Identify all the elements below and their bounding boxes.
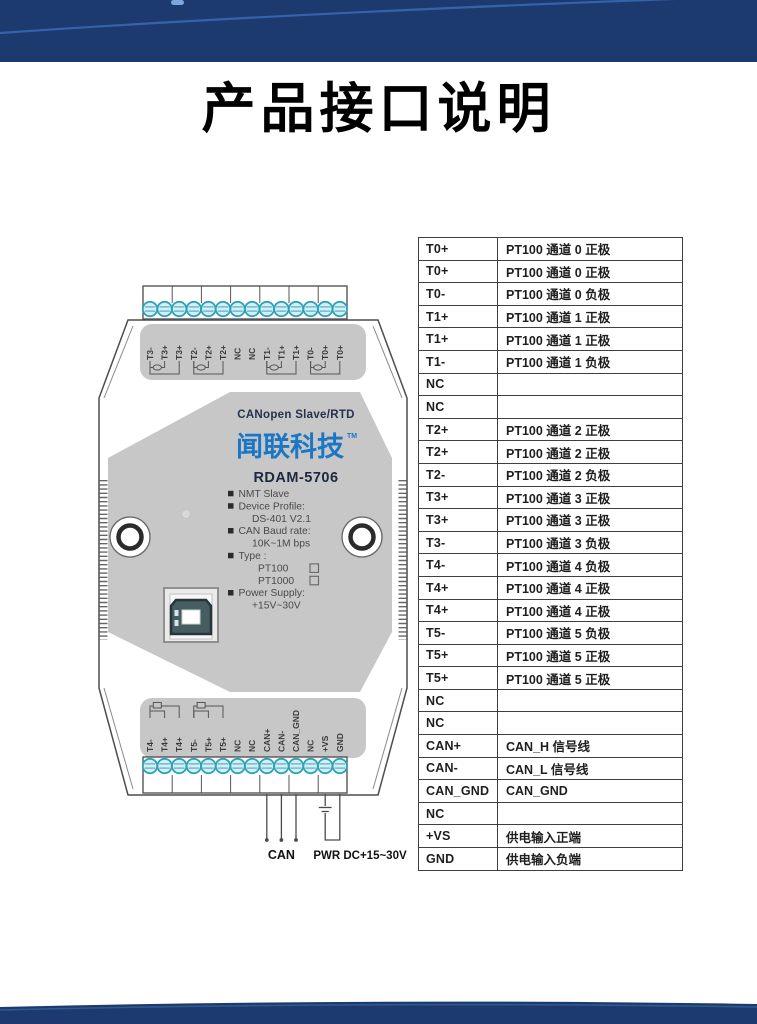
- desc-cell: PT100 通道 1 正极: [498, 306, 682, 328]
- terminal-screw: [260, 302, 274, 316]
- pin-cell: T4-: [419, 554, 498, 576]
- terminal-screw: [289, 759, 303, 773]
- model-number: RDAM-5706: [253, 470, 338, 486]
- pin-cell: NC: [419, 712, 498, 734]
- terminal-label: T3+: [160, 345, 170, 360]
- desc-cell: PT100 通道 2 正极: [498, 419, 682, 441]
- trademark-mark: TM: [347, 433, 357, 440]
- table-row: T4-PT100 通道 4 负极: [419, 554, 682, 577]
- table-row: T4+PT100 通道 4 正极: [419, 600, 682, 623]
- spec-line: +15V~30V: [252, 601, 301, 612]
- terminal-screw: [187, 759, 201, 773]
- table-row: T2+PT100 通道 2 正极: [419, 419, 682, 442]
- spec-line: Device Profile:: [239, 501, 305, 512]
- terminal-label: T4+: [174, 737, 184, 752]
- bullet-square-icon: [228, 528, 234, 534]
- terminal-label: T2+: [203, 345, 213, 360]
- table-row: T2-PT100 通道 2 负极: [419, 464, 682, 487]
- pin-cell: GND: [419, 848, 498, 870]
- header-background: [0, 0, 757, 62]
- desc-cell: 供电输入负端: [498, 848, 682, 870]
- terminal-label: T5+: [218, 737, 228, 752]
- terminal-label: NC: [247, 348, 257, 360]
- table-row: T3+PT100 通道 3 正极: [419, 487, 682, 510]
- table-row: CAN_GNDCAN_GND: [419, 780, 682, 803]
- terminal-label: T0+: [320, 345, 330, 360]
- terminal-screw: [143, 302, 157, 316]
- pin-cell: T2-: [419, 464, 498, 486]
- spec-line: PT1000: [258, 576, 294, 587]
- terminal-label: T2+: [218, 345, 228, 360]
- pin-cell: T0+: [419, 261, 498, 283]
- bottom-terminal-block: [143, 757, 347, 793]
- terminal-screw: [318, 302, 332, 316]
- desc-cell: [498, 690, 682, 712]
- desc-cell: PT100 通道 3 正极: [498, 509, 682, 531]
- table-row: T5+PT100 通道 5 正极: [419, 645, 682, 668]
- pin-cell: +VS: [419, 825, 498, 847]
- terminal-label: NC: [233, 740, 243, 752]
- pin-cell: NC: [419, 396, 498, 418]
- pin-cell: T4+: [419, 577, 498, 599]
- top-terminals: T3-T3+T3+T2-T2+T2+NCNCT1-T1+T1+T0-T0+T0+: [143, 302, 347, 360]
- terminal-screw: [274, 759, 288, 773]
- table-row: NC: [419, 690, 682, 713]
- terminal-screw: [245, 302, 259, 316]
- terminal-label: GND: [335, 733, 345, 752]
- table-row: T2+PT100 通道 2 正极: [419, 441, 682, 464]
- desc-cell: PT100 通道 0 正极: [498, 261, 682, 283]
- terminal-label: T4+: [160, 737, 170, 752]
- pin-cell: NC: [419, 803, 498, 825]
- pin-cell: T0+: [419, 238, 498, 260]
- desc-cell: PT100 通道 4 正极: [498, 600, 682, 622]
- brand-logo-text: 闻联科技: [236, 432, 344, 462]
- desc-cell: [498, 712, 682, 734]
- table-row: T5+PT100 通道 5 正极: [419, 667, 682, 690]
- desc-cell: PT100 通道 4 负极: [498, 554, 682, 576]
- status-led: [182, 510, 191, 519]
- pin-cell: T5-: [419, 622, 498, 644]
- terminal-label: T3-: [145, 347, 155, 360]
- device-body-detail-lines: [104, 326, 402, 789]
- terminal-screw: [230, 759, 244, 773]
- power-wire-label: PWR DC+15~30V: [313, 850, 407, 862]
- center-label-panel: [108, 392, 392, 692]
- terminal-label: T2-: [189, 347, 199, 360]
- table-row: T3+PT100 通道 3 正极: [419, 509, 682, 532]
- terminal-label: T1+: [276, 345, 286, 360]
- bottom-jumper-links: [150, 703, 223, 719]
- terminal-label: +VS: [320, 735, 330, 752]
- terminal-screw: [216, 302, 230, 316]
- table-row: NC: [419, 803, 682, 826]
- desc-cell: PT100 通道 5 正极: [498, 645, 682, 667]
- table-row: T1-PT100 通道 1 负极: [419, 351, 682, 374]
- desc-cell: PT100 通道 2 负极: [498, 464, 682, 486]
- pin-cell: T3+: [419, 509, 498, 531]
- table-row: NC: [419, 712, 682, 735]
- terminal-label: T1-: [262, 347, 272, 360]
- desc-cell: [498, 396, 682, 418]
- pin-cell: CAN-: [419, 758, 498, 780]
- terminal-label: T5-: [189, 739, 199, 752]
- top-terminal-block: [143, 286, 347, 319]
- pin-cell: NC: [419, 374, 498, 396]
- device-body: [99, 320, 407, 795]
- table-row: NC: [419, 374, 682, 397]
- desc-cell: [498, 374, 682, 396]
- type-checkbox: [310, 576, 319, 585]
- spec-line: PT100: [258, 563, 289, 574]
- terminal-screw: [274, 302, 288, 316]
- terminal-label: T1+: [291, 345, 301, 360]
- terminal-label: CAN_GND: [291, 710, 301, 752]
- pin-cell: T5+: [419, 645, 498, 667]
- table-row: T0-PT100 通道 0 负极: [419, 283, 682, 306]
- terminal-screw: [289, 302, 303, 316]
- pin-cell: T3-: [419, 532, 498, 554]
- bottom-terminals: T4-T4+T4+T5-T5+T5+NCNCCAN+CAN-CAN_GNDNC+…: [143, 710, 347, 773]
- page-title: 产品接口说明: [0, 64, 757, 143]
- spec-list: NMT SlaveDevice Profile:DS-401 V2.1CAN B…: [228, 489, 319, 612]
- bottom-terminal-label-strip: [140, 698, 366, 758]
- left-mounting-hole: [110, 517, 150, 557]
- desc-cell: PT100 通道 2 正极: [498, 441, 682, 463]
- spec-line: NMT Slave: [239, 489, 290, 500]
- terminal-screw: [201, 759, 215, 773]
- terminal-label: NC: [306, 740, 316, 752]
- can-wires: [265, 794, 298, 842]
- spec-line: Power Supply:: [239, 588, 305, 599]
- pin-cell: T2+: [419, 441, 498, 463]
- pin-cell: T4+: [419, 600, 498, 622]
- desc-cell: PT100 通道 0 正极: [498, 238, 682, 260]
- desc-cell: CAN_L 信号线: [498, 758, 682, 780]
- terminal-screw: [143, 759, 157, 773]
- desc-cell: CAN_H 信号线: [498, 735, 682, 757]
- terminal-label: T4-: [145, 739, 155, 752]
- pin-cell: T3+: [419, 487, 498, 509]
- terminal-screw: [157, 302, 171, 316]
- desc-cell: 供电输入正端: [498, 825, 682, 847]
- terminal-label: T5+: [203, 737, 213, 752]
- pin-cell: CAN_GND: [419, 780, 498, 802]
- spec-line: 10K~1M bps: [252, 539, 310, 550]
- desc-cell: PT100 通道 3 正极: [498, 487, 682, 509]
- can-wire-label: CAN: [268, 848, 295, 862]
- pin-cell: T0-: [419, 283, 498, 305]
- pin-cell: T2+: [419, 419, 498, 441]
- desc-cell: [498, 803, 682, 825]
- bullet-square-icon: [228, 503, 234, 509]
- terminal-screw: [216, 759, 230, 773]
- desc-cell: PT100 通道 1 负极: [498, 351, 682, 373]
- terminal-label: T0-: [306, 347, 316, 360]
- table-row: T1+PT100 通道 1 正极: [419, 306, 682, 329]
- desc-cell: PT100 通道 1 正极: [498, 328, 682, 350]
- desc-cell: PT100 通道 5 负极: [498, 622, 682, 644]
- table-row: CAN+CAN_H 信号线: [419, 735, 682, 758]
- terminal-screw: [333, 759, 347, 773]
- spec-line: Type :: [239, 551, 267, 562]
- desc-cell: PT100 通道 3 负极: [498, 532, 682, 554]
- table-row: T4+PT100 通道 4 正极: [419, 577, 682, 600]
- terminal-screw: [172, 759, 186, 773]
- bullet-square-icon: [228, 491, 234, 497]
- terminal-screw: [172, 302, 186, 316]
- table-row: CAN-CAN_L 信号线: [419, 758, 682, 781]
- footer-band: [0, 998, 757, 1024]
- table-row: GND供电输入负端: [419, 848, 682, 871]
- terminal-screw: [230, 302, 244, 316]
- terminal-screw: [303, 759, 317, 773]
- table-row: T3-PT100 通道 3 负极: [419, 532, 682, 555]
- pin-cell: CAN+: [419, 735, 498, 757]
- type-checkbox: [310, 564, 319, 573]
- bullet-square-icon: [228, 590, 234, 596]
- pin-cell: T1+: [419, 306, 498, 328]
- product-line-label: CANopen Slave/RTD: [237, 409, 355, 421]
- table-row: T0+PT100 通道 0 正极: [419, 238, 682, 261]
- usb-b-port: [164, 588, 218, 642]
- pin-cell: NC: [419, 690, 498, 712]
- power-wires: [319, 794, 340, 840]
- terminal-label: CAN-: [276, 731, 286, 752]
- header-band: [0, 0, 757, 62]
- terminal-label: CAN+: [262, 729, 272, 752]
- terminal-label: NC: [247, 740, 257, 752]
- top-terminal-label-strip: [140, 324, 366, 380]
- pin-cell: T5+: [419, 667, 498, 689]
- pin-cell: T1-: [419, 351, 498, 373]
- terminal-screw: [187, 302, 201, 316]
- table-row: T1+PT100 通道 1 正极: [419, 328, 682, 351]
- desc-cell: PT100 通道 4 正极: [498, 577, 682, 599]
- terminal-label: T0+: [335, 345, 345, 360]
- terminal-screw: [333, 302, 347, 316]
- desc-cell: PT100 通道 5 正极: [498, 667, 682, 689]
- terminal-label: T3+: [174, 345, 184, 360]
- pin-cell: T1+: [419, 328, 498, 350]
- logo-fragment-icon: [171, 0, 184, 5]
- terminal-label: NC: [233, 348, 243, 360]
- desc-cell: CAN_GND: [498, 780, 682, 802]
- spec-line: DS-401 V2.1: [252, 514, 311, 525]
- table-row: NC: [419, 396, 682, 419]
- terminal-screw: [245, 759, 259, 773]
- bullet-square-icon: [228, 553, 234, 559]
- terminal-screw: [260, 759, 274, 773]
- pin-table: T0+PT100 通道 0 正极T0+PT100 通道 0 正极T0-PT100…: [418, 237, 683, 871]
- terminal-screw: [157, 759, 171, 773]
- top-jumper-links: [150, 361, 340, 374]
- table-row: T0+PT100 通道 0 正极: [419, 261, 682, 284]
- terminal-screw: [303, 302, 317, 316]
- terminal-screw: [201, 302, 215, 316]
- terminal-screw: [318, 759, 332, 773]
- table-row: +VS供电输入正端: [419, 825, 682, 848]
- desc-cell: PT100 通道 0 负极: [498, 283, 682, 305]
- spec-line: CAN Baud rate:: [239, 526, 311, 537]
- table-row: T5-PT100 通道 5 负极: [419, 622, 682, 645]
- right-mounting-hole: [342, 517, 382, 557]
